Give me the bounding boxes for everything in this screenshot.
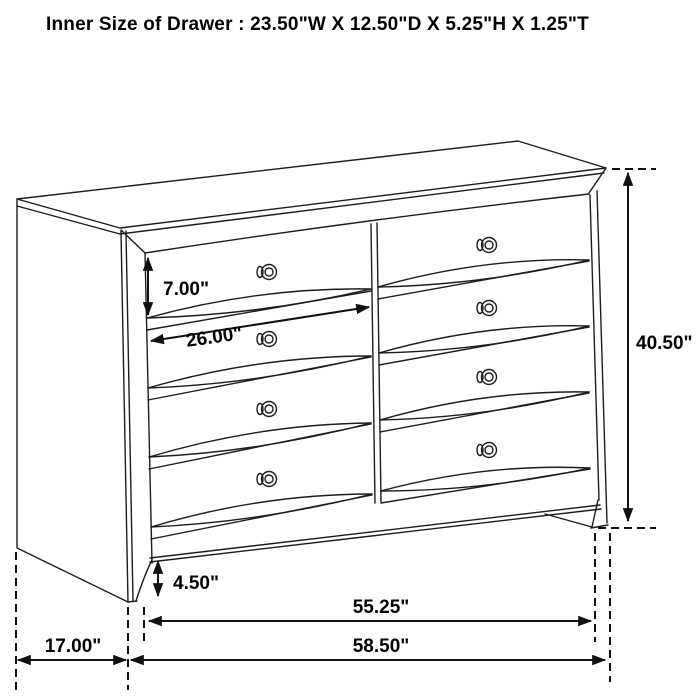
separator-chord <box>379 327 589 365</box>
dresser-front-frame <box>145 191 607 563</box>
separator-chord <box>380 393 589 432</box>
apron-bottom-edge-inner <box>150 509 601 562</box>
center-divider-right-line <box>377 223 381 502</box>
dim-label-overall-width: 58.50" <box>353 636 410 657</box>
separator-lens-top <box>149 423 371 457</box>
separator-lens-top <box>380 392 589 420</box>
dim-label-base-height: 4.50" <box>173 573 219 594</box>
bottom-eyebrow-bottom <box>151 494 372 527</box>
right-foot-cut <box>545 514 592 527</box>
separator-lens-top <box>378 260 589 287</box>
separator-lens-top <box>148 356 371 388</box>
dimension-diagram: Inner Size of Drawer : 23.50"W X 12.50"D… <box>0 0 700 700</box>
dim-label-inner-leg-span: 55.25" <box>353 597 410 618</box>
apron-bottom-edge-outer <box>150 505 600 558</box>
separator-chord <box>149 424 371 469</box>
dim-label-drawer-width: 26.00" <box>185 323 244 352</box>
bottom-eyebrow-top <box>151 494 372 527</box>
separator-lens-bottom <box>379 326 589 353</box>
front-right-edge-inner <box>590 195 599 500</box>
apron-top-edge <box>381 469 590 503</box>
separator-lens-top <box>379 326 589 353</box>
knob <box>257 332 277 347</box>
dresser-diagram-canvas: 7.00" 26.00" 40.50" 4.50" 55.25" 17.00" <box>0 0 700 700</box>
knob <box>477 301 497 316</box>
top-bevel-right <box>589 168 606 193</box>
dim-label-overall-height: 40.50" <box>636 333 693 354</box>
top-edge-thickness-left <box>17 199 120 234</box>
separator-chord <box>378 261 589 299</box>
knob <box>477 238 497 253</box>
right-leg-inner-edge <box>592 500 598 527</box>
knob <box>257 402 277 417</box>
dresser-line-art <box>17 141 608 602</box>
knob <box>477 370 497 385</box>
extension-lines <box>16 169 656 690</box>
drawer-knobs <box>257 238 497 487</box>
top-bevel-left <box>121 230 145 253</box>
dim-drawer-height: 7.00" <box>148 258 209 315</box>
separator-lens-bottom <box>380 392 589 420</box>
separator-lens-bottom <box>148 356 371 388</box>
top-edge-thickness-front <box>120 173 604 234</box>
knob <box>477 443 497 458</box>
dresser-top-face <box>17 141 606 253</box>
separator-lens-bottom <box>378 260 589 287</box>
bottom-eyebrow-top <box>381 467 590 491</box>
side-panel-outline <box>17 206 128 602</box>
drawer-separators-right-column <box>378 260 590 503</box>
knob <box>257 265 277 280</box>
center-divider-left-line <box>371 224 375 503</box>
dim-inner-leg-span: 55.25" <box>149 597 591 621</box>
knob <box>257 472 277 487</box>
dim-overall-width: 58.50" <box>131 636 605 660</box>
dim-label-drawer-height: 7.00" <box>163 279 209 300</box>
dim-label-depth: 17.00" <box>45 636 102 657</box>
dim-depth: 17.00" <box>18 636 126 660</box>
separator-lens-bottom <box>149 423 371 457</box>
left-foot-cut <box>136 560 152 601</box>
left-leg-bottom <box>128 601 137 602</box>
dim-base-height: 4.50" <box>158 561 219 596</box>
dresser-side-panel <box>17 206 133 602</box>
dim-overall-height: 40.50" <box>628 173 693 521</box>
